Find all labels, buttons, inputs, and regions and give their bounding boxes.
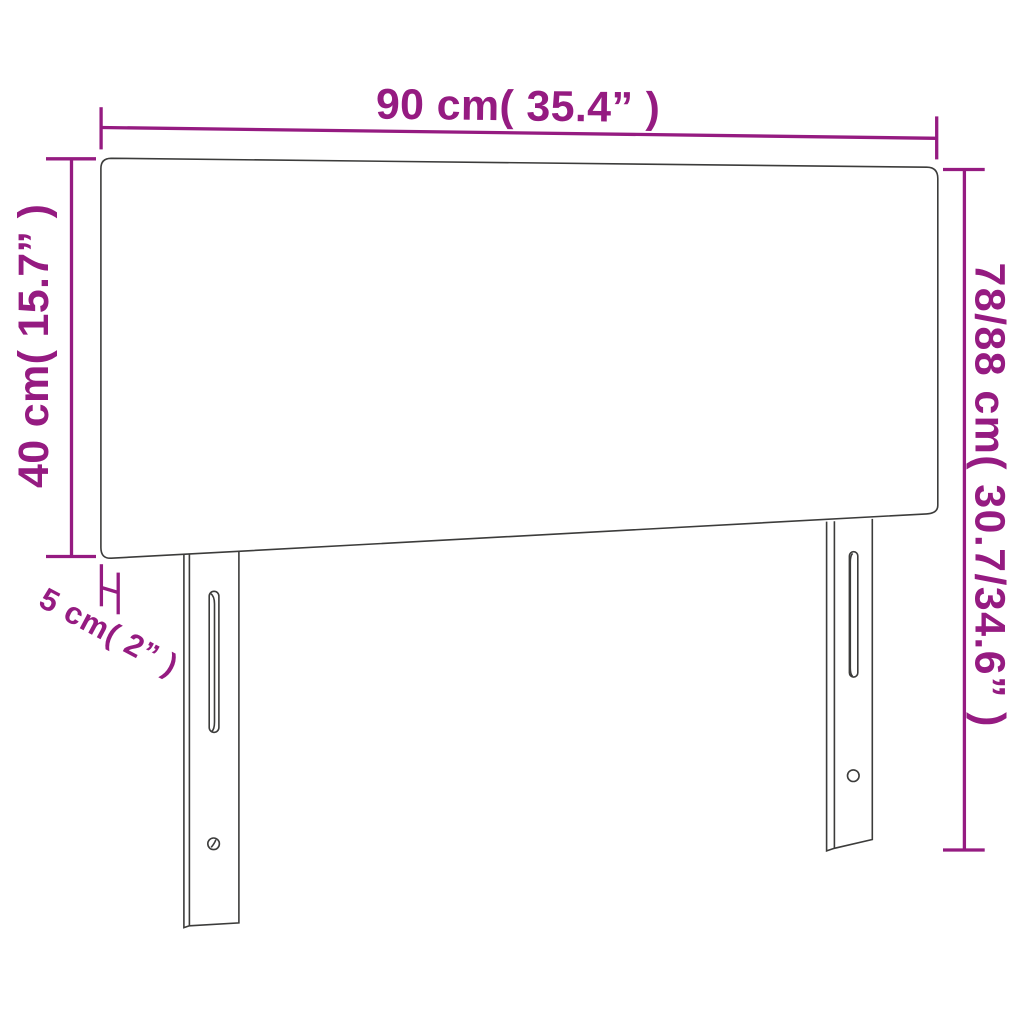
svg-text:40 cm( 15.7” ): 40 cm( 15.7” ) <box>10 204 58 488</box>
svg-text:90 cm( 35.4” ): 90 cm( 35.4” ) <box>376 81 661 133</box>
svg-text:5 cm( 2” ): 5 cm( 2” ) <box>34 581 184 683</box>
svg-text:78/88 cm( 30.7/34.6” ): 78/88 cm( 30.7/34.6” ) <box>966 263 1014 727</box>
